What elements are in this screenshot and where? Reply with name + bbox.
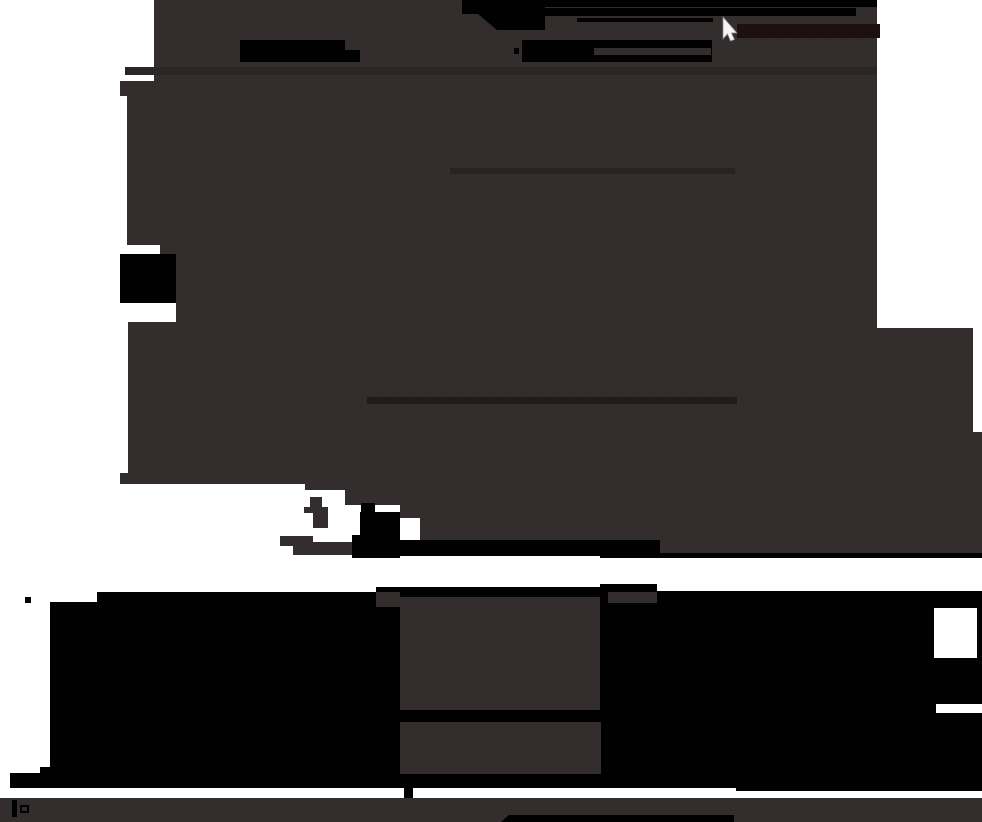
ground-black-post bbox=[12, 800, 17, 817]
black-bar-thin bbox=[577, 18, 713, 22]
canopy-speckle-texture bbox=[120, 0, 982, 553]
band-gray-tab bbox=[376, 592, 400, 607]
ground-gray-bar bbox=[0, 798, 982, 822]
black-dot-left-of-bar bbox=[514, 48, 519, 54]
right-edge-white-notch bbox=[973, 328, 982, 432]
dark-streak-middle bbox=[450, 168, 735, 174]
silhouette-scene bbox=[0, 0, 982, 822]
black-bar-top-2 bbox=[495, 8, 856, 16]
band-bottom-hook bbox=[404, 780, 413, 800]
band-gray-block-upper bbox=[400, 597, 600, 710]
black-bar-top-1 bbox=[545, 0, 877, 7]
band-gray-block-right bbox=[608, 592, 657, 603]
dark-streak-lower bbox=[367, 397, 737, 404]
black-strip-canopy-bottom bbox=[600, 553, 982, 558]
posterized-photo-canvas bbox=[0, 0, 982, 822]
faint-horizontal-band bbox=[125, 67, 877, 75]
band-white-notch-1 bbox=[934, 608, 977, 658]
band-gray-block-lower bbox=[400, 722, 601, 774]
black-bar-left-lower bbox=[240, 50, 360, 62]
black-bar-center-gray-stripe bbox=[594, 48, 711, 55]
gray-fragment-2 bbox=[304, 507, 328, 513]
ground-black-square-inner bbox=[22, 807, 27, 811]
maroon-bar bbox=[737, 24, 880, 38]
gray-fragment-1 bbox=[310, 497, 322, 507]
ground-black-wedge bbox=[501, 815, 734, 822]
gray-fragment-bar bbox=[293, 542, 352, 555]
left-edge-black-blob bbox=[120, 254, 176, 303]
gray-fragment-3 bbox=[313, 513, 328, 528]
band-white-notch-2 bbox=[936, 704, 982, 713]
black-bar-left-upper bbox=[240, 40, 345, 50]
band-left-dot bbox=[25, 597, 31, 603]
